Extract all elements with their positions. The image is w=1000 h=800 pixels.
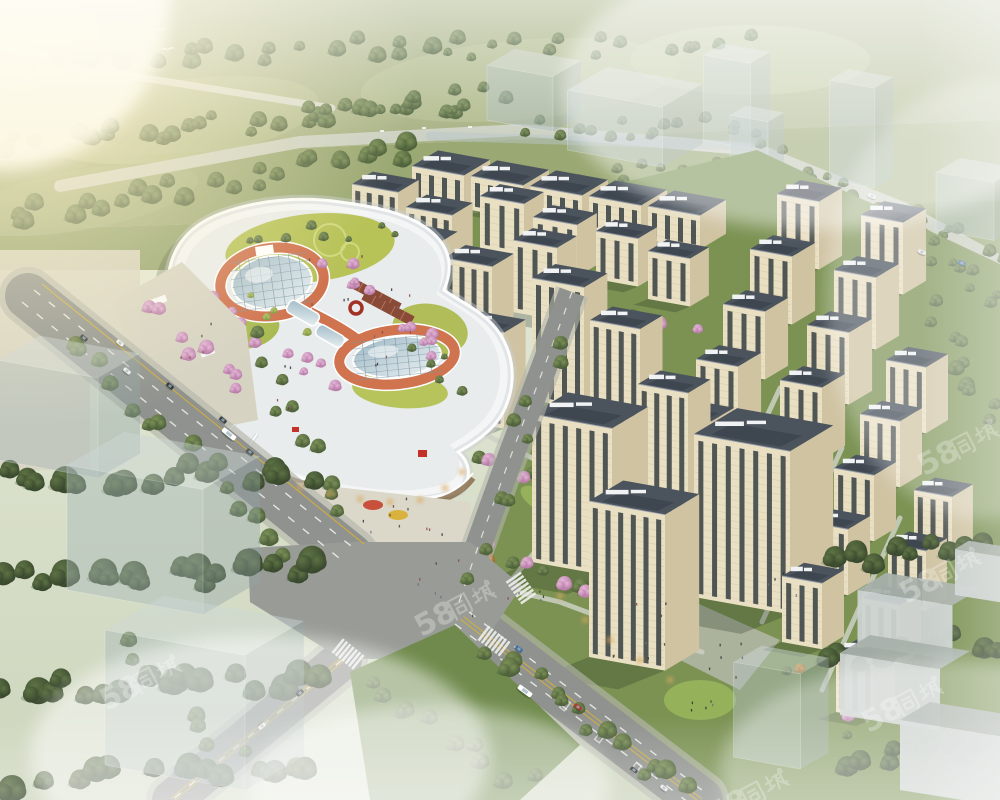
storefront-sign — [292, 427, 299, 432]
aerial-rendering-image: 585858585858 — [0, 0, 1000, 800]
storefront-sign — [418, 450, 427, 457]
rendering-canvas: 585858585858 — [0, 0, 1000, 800]
